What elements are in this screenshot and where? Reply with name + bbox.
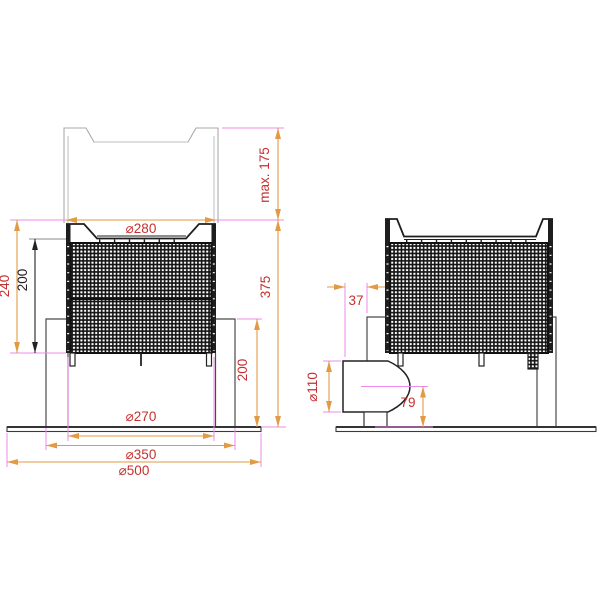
dim-base-diameter: ⌀500 (7, 462, 261, 478)
dim-label: 79 (400, 395, 415, 410)
technical-drawing: ⌀280 max. 175 375 240 200 200 (0, 0, 600, 600)
base-plate-front (7, 427, 261, 432)
ghost-inner-walls (68, 136, 214, 223)
dim-overall-height: 375 (258, 220, 278, 427)
pipe-neck (364, 412, 387, 428)
dim-label: ⌀500 (119, 463, 150, 478)
drawing-canvas: ⌀280 max. 175 375 240 200 200 (0, 0, 600, 600)
dim-collar-height: 200 (235, 319, 257, 427)
dim-label: 200 (235, 359, 250, 382)
ghost-raised-basket-outline (64, 128, 218, 223)
dim-label: ⌀270 (126, 409, 157, 424)
dim-collar-diameter: ⌀350 (46, 446, 235, 463)
dim-screen-height: 200 (15, 239, 35, 353)
strainer-basket-front (66, 224, 216, 366)
side-view: 37 ⌀110 79 (305, 219, 596, 432)
dim-label: max. 175 (257, 147, 272, 203)
dim-label: ⌀110 (305, 372, 320, 402)
basket-foot-center (479, 353, 484, 366)
basket-foot-left (70, 353, 75, 366)
basket-foot-left (398, 353, 403, 366)
strainer-basket-side (385, 219, 553, 369)
basket-rim-profile (385, 219, 553, 237)
dim-label: 200 (15, 269, 30, 292)
dim-outlet-diameter: ⌀110 (305, 361, 329, 412)
dim-label: ⌀350 (126, 447, 157, 462)
basket-foot-right (207, 353, 212, 366)
dim-label: 37 (348, 293, 363, 308)
dim-max-lift-height: max. 175 (257, 128, 278, 220)
base-plate-side (336, 427, 596, 432)
wire-mesh-side (390, 243, 548, 353)
mesh-wrap-block (528, 353, 538, 369)
dim-label: ⌀280 (126, 221, 157, 236)
dim-outlet-offset: 37 (327, 287, 385, 308)
dim-label: 375 (258, 276, 273, 299)
front-view: ⌀280 max. 175 375 240 200 200 (0, 128, 286, 478)
dim-label: 240 (0, 275, 12, 298)
